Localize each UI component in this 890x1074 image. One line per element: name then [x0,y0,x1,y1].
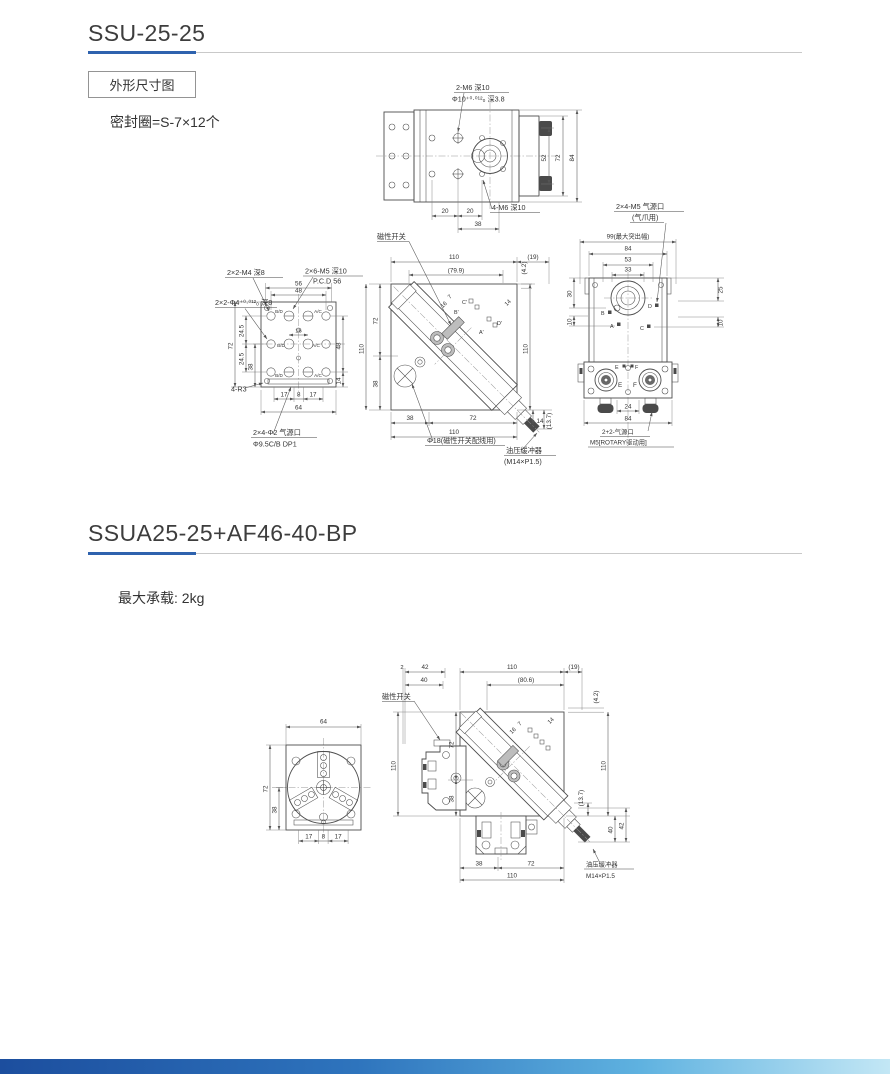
dim-14-right: 14 [537,418,545,425]
dim-84: 84 [569,154,576,162]
port-label-d: D [648,304,652,310]
dim-24: 24 [624,404,632,411]
dim-80-6: (80.6) [518,677,534,684]
dim-38: 38 [248,363,255,371]
port-label-f2: F [633,382,637,389]
dim-110-left: 110 [359,343,366,354]
callout-rotary-m5: M5[ROTARY驱动用] [590,439,647,447]
callout-rotary-air: 2+2-气源口 [602,427,634,436]
port-label: B/D [275,373,283,378]
dim-48-top: 48 [295,288,303,295]
rotated-view-geometry [375,268,557,450]
callout-phi18: Φ18(磁性开关配线用) [427,436,496,445]
dim-52: 52 [541,154,548,162]
drawing-front-view: B A D C E F E F 99(最大突出幅) 84 53 33 30 [558,198,748,466]
port-label: A/C [314,309,322,314]
dim-64: 64 [295,405,303,412]
dim-20a: 20 [441,208,449,215]
air-port-top [539,121,552,136]
section2-title: SSUA25-25+AF46-40-BP [88,520,357,547]
page-footer-bar [0,1059,890,1074]
section1-title: SSU-25-25 [88,20,205,47]
dim-56: 56 [295,281,303,288]
dim-19: (19) [527,254,538,261]
port-label-c: C' [462,300,467,306]
assembly-hole-dims: 16 7 14 [509,716,556,735]
dim-110-top: 110 [507,664,518,671]
plate-callouts: 2×2-M4 深8 2×6-M5 深10 P.C.D 56 2×2-Φ4⁺⁰·⁰… [215,267,363,449]
callout-counterbore: Φ9.5C/B DP1 [253,440,297,449]
port-label-e2: E [618,382,622,389]
dim-17b: 17 [309,392,317,399]
dim-84: 84 [624,246,632,253]
dim-110-top: 110 [449,254,460,261]
dim-38-left: 38 [373,380,380,388]
seal-ring-note: 密封圈=S-7×12个 [110,112,220,132]
dim-25: 25 [718,286,725,294]
callout-m4: 2×2-M4 深8 [227,268,265,277]
dim-17a: 17 [305,834,313,841]
dim-72: 72 [263,785,270,793]
port-label-d: D' [497,321,502,327]
max-load-note: 最大承载: 2kg [118,588,204,608]
dim-17b: 17 [335,834,343,841]
dim-7: 7 [517,721,524,728]
callout-shock-thread: (M14×P1.5) [504,457,542,466]
callout-pcd: P.C.D 56 [313,277,341,286]
top-view-callouts: 2-M6 深10 Φ10⁺⁰·⁰¹²₀ 深3.8 4-M6 深10 [452,83,540,213]
section1-rule [88,51,802,54]
dim-72: 72 [228,342,235,350]
dim-42-top: 42 [421,664,429,671]
dim-72-left: 72 [449,741,456,749]
callout-phi10: Φ10⁺⁰·⁰¹²₀ 深3.8 [452,95,505,104]
section2-rule [88,552,802,555]
dim-14: 14 [336,377,343,385]
dim-79-9: (79.9) [448,268,464,275]
drawing-rotated-view: B' C' A' D' 16 7 14 110 (19) (79.9) (4.2… [353,226,568,476]
callout-4-m6: 4-M6 深10 [492,203,526,212]
callout-air-port: 2×4-Φ2 气源口 [253,428,301,437]
assembly-geometry [422,695,607,860]
dim-19: (19) [568,664,579,671]
dim-40-top: 40 [420,677,428,684]
dim-110-right: 110 [523,343,530,354]
dim-4-2: (4.2) [521,262,528,275]
port-label: A/C [312,343,320,348]
dim-33: 33 [624,267,632,274]
callout-r3: 4-R3 [231,385,247,394]
dim-38-left: 38 [449,795,456,803]
dim-10-left: 10 [567,318,574,326]
chuck-geometry [276,738,371,838]
dim-13-7: (13.7) [578,790,585,806]
dim-40-right: 40 [608,826,615,834]
air-port-bottom [539,176,552,191]
port-label-f1: F [635,365,639,371]
dim-14-holes: 14 [504,298,513,307]
drawing-plate-view: B/D A/C B/D A/C B/D A/C 56 48 72 24.5 24… [215,266,367,458]
port-label-a: A' [479,330,484,336]
port-label-c: C [640,326,644,332]
dim-48-right: 48 [336,342,343,350]
port-label-b: B [601,311,605,317]
dim-42-right: 42 [619,822,626,830]
callout-phi4: 2×2-Φ4⁺⁰·⁰¹²₀ 深8 [215,298,272,307]
callout-magnet-switch: 磁性开关 [382,692,411,701]
outline-dimension-label: 外形尺寸图 [88,71,196,98]
port-label: A/C [314,373,322,378]
dim-2: 2 [400,665,403,671]
dim-110-bottom: 110 [507,873,518,880]
callout-gripper-use: (气爪用) [632,213,658,222]
dim-110-left: 110 [391,760,398,771]
rule-gray-segment [196,553,802,554]
port-label: B/D [277,343,285,348]
port-label-a: A [610,324,614,330]
callout-shock-absorber: 油压缓冲器 [586,860,618,869]
dim-20b: 20 [466,208,474,215]
dim-99: 99(最大突出幅) [607,232,650,241]
dim-72-left: 72 [373,317,380,325]
rule-blue-segment [88,51,196,54]
dim-110-bottom: 110 [449,429,460,436]
port-label-e1: E [615,365,619,371]
callout-m5: 2×6-M5 深10 [305,267,347,276]
callout-m5-air: 2×4-M5 气源口 [616,202,664,211]
dim-14: 14 [547,716,556,725]
dim-10-right: 10 [718,319,725,327]
front-view-geometry [578,272,678,438]
plate-geometry [253,294,345,396]
dim-38-bottom: 38 [406,415,414,422]
dim-4-2: (4.2) [593,691,600,704]
dim-72-bottom: 72 [469,415,477,422]
callout-2-m6: 2-M6 深10 [456,83,490,92]
drawing-assembly-view: 16 7 14 2 42 110 (19) 40 (80.6) 110 72 [378,652,650,904]
dim-72: 72 [555,154,562,162]
gripper-unit [422,746,466,810]
dim-24-5a: 24.5 [239,324,246,337]
dim-24-5b: 24.5 [239,352,246,365]
catalog-page: SSU-25-25 外形尺寸图 密封圈=S-7×12个 [0,0,890,1074]
dim-53: 53 [624,257,632,264]
dim-16: 16 [295,329,301,335]
dim-13-7: (13.7) [546,413,553,429]
callout-magnet-switch: 磁性开关 [377,232,406,241]
callout-shock-thread: M14×P1.5 [586,873,615,880]
dim-7: 7 [447,294,454,301]
top-view-geometry [376,102,558,210]
rule-blue-segment [88,552,196,555]
dim-38-bottom: 38 [475,861,483,868]
rule-gray-segment [196,52,802,53]
dim-8: 8 [297,392,301,399]
dim-110-right: 110 [601,760,608,771]
dim-72-bottom: 72 [527,861,535,868]
dim-64: 64 [320,719,328,726]
dim-30: 30 [567,290,574,298]
dim-8: 8 [322,834,326,841]
port-label: B/D [275,309,283,314]
port-label-b: B' [454,310,459,316]
dim-38: 38 [272,806,279,814]
plate-port-labels: B/D A/C B/D A/C B/D A/C [275,309,322,378]
dim-84-bottom: 84 [624,416,632,423]
dim-16: 16 [509,727,518,736]
front-view-dimensions: 99(最大突出幅) 84 53 33 30 10 25 10 24 [567,232,725,427]
